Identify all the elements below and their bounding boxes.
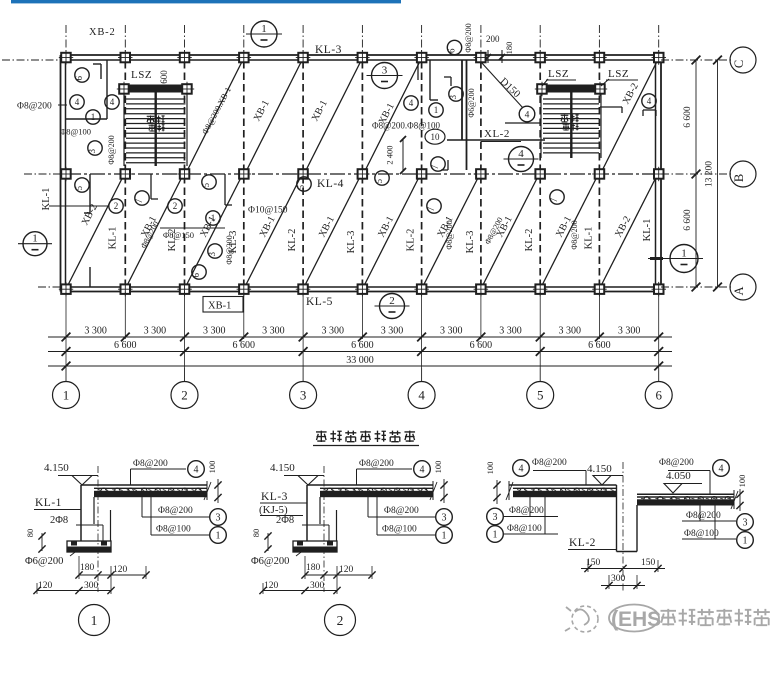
- svg-text:5: 5: [537, 388, 544, 403]
- svg-text:1: 1: [63, 388, 70, 403]
- svg-text:C: C: [732, 60, 746, 68]
- svg-text:Φ8@100: Φ8@100: [507, 524, 542, 534]
- svg-text:3 300: 3 300: [618, 326, 641, 337]
- svg-text:6 600: 6 600: [683, 209, 693, 231]
- svg-text:KL-2: KL-2: [406, 229, 417, 252]
- svg-text:Φ8@200: Φ8@200: [464, 23, 473, 52]
- svg-text:6 600: 6 600: [351, 340, 374, 351]
- svg-text:1: 1: [493, 530, 498, 541]
- svg-text:300: 300: [310, 581, 325, 591]
- svg-text:100: 100: [485, 462, 495, 475]
- svg-text:2: 2: [181, 388, 188, 403]
- svg-text:6: 6: [191, 272, 201, 277]
- svg-text:KL-1: KL-1: [583, 227, 594, 250]
- svg-text:3: 3: [743, 518, 748, 529]
- svg-text:6: 6: [74, 75, 84, 80]
- svg-text:Φ8@100: Φ8@100: [684, 529, 719, 539]
- svg-text:100: 100: [737, 475, 747, 488]
- svg-text:2Φ8: 2Φ8: [50, 515, 68, 526]
- svg-text:LSZ: LSZ: [131, 69, 152, 81]
- svg-text:6: 6: [655, 388, 662, 403]
- svg-text:6 600: 6 600: [233, 340, 256, 351]
- svg-text:4: 4: [75, 97, 80, 107]
- svg-text:Φ8@150: Φ8@150: [163, 230, 194, 240]
- svg-text:4: 4: [194, 465, 199, 476]
- svg-text:Φ8@200: Φ8@200: [158, 506, 193, 516]
- svg-text:180: 180: [504, 42, 514, 55]
- svg-text:3: 3: [493, 512, 498, 523]
- svg-text:4.150: 4.150: [587, 463, 612, 475]
- svg-text:3 300: 3 300: [203, 326, 226, 337]
- svg-text:6 600: 6 600: [114, 340, 137, 351]
- svg-text:6 600: 6 600: [683, 106, 693, 128]
- svg-text:1: 1: [32, 233, 38, 245]
- svg-text:600: 600: [159, 70, 169, 84]
- svg-text:2: 2: [173, 201, 178, 211]
- svg-text:6 600: 6 600: [588, 340, 611, 351]
- svg-text:Φ8@100: Φ8@100: [156, 525, 191, 535]
- svg-text:3 300: 3 300: [381, 326, 404, 337]
- svg-text:KL-3: KL-3: [261, 491, 288, 503]
- svg-text:KL-3: KL-3: [315, 44, 342, 56]
- svg-text:KL-3: KL-3: [346, 231, 357, 254]
- svg-text:3: 3: [382, 65, 388, 77]
- svg-text:1: 1: [211, 213, 216, 223]
- svg-text:4: 4: [525, 110, 530, 120]
- svg-text:LSZ: LSZ: [548, 68, 569, 80]
- svg-text:2: 2: [389, 295, 395, 307]
- svg-text:10: 10: [431, 132, 441, 142]
- svg-text:4: 4: [110, 97, 115, 107]
- svg-text:120: 120: [38, 581, 53, 591]
- svg-text:Φ8@200: Φ8@200: [509, 506, 544, 516]
- svg-text:6: 6: [447, 48, 457, 53]
- svg-text:KL-5: KL-5: [306, 296, 333, 308]
- svg-text:3: 3: [216, 513, 221, 524]
- svg-text:Φ8@100: Φ8@100: [60, 127, 91, 137]
- svg-text:Φ8@200: Φ8@200: [532, 458, 567, 468]
- svg-text:B: B: [732, 174, 746, 182]
- svg-text:5: 5: [296, 184, 306, 189]
- svg-text:3 300: 3 300: [499, 326, 522, 337]
- svg-text:3 300: 3 300: [321, 326, 344, 337]
- svg-text:13 200: 13 200: [705, 161, 715, 187]
- svg-text:KL-3: KL-3: [465, 231, 476, 254]
- svg-text:2Φ8: 2Φ8: [276, 515, 294, 526]
- svg-text:120: 120: [113, 565, 128, 575]
- svg-text:7: 7: [426, 206, 436, 211]
- svg-text:4: 4: [519, 464, 524, 475]
- svg-text:4: 4: [409, 98, 414, 108]
- svg-text:4: 4: [719, 464, 724, 475]
- svg-text:150: 150: [641, 558, 656, 568]
- svg-text:XB-1: XB-1: [208, 301, 231, 312]
- svg-text:7: 7: [549, 197, 559, 202]
- svg-text:Φ8@200: Φ8@200: [570, 220, 579, 249]
- svg-text:7: 7: [430, 164, 440, 169]
- svg-text:300: 300: [84, 581, 99, 591]
- svg-text:KL-2: KL-2: [524, 229, 535, 252]
- svg-text:3 300: 3 300: [559, 326, 582, 337]
- svg-text:4.150: 4.150: [44, 462, 69, 474]
- svg-text:5: 5: [374, 178, 384, 183]
- svg-text:3 300: 3 300: [440, 326, 463, 337]
- svg-text:Φ10@150: Φ10@150: [248, 206, 288, 216]
- svg-text:3 300: 3 300: [262, 326, 285, 337]
- svg-text:LSZ: LSZ: [608, 68, 629, 80]
- svg-text:Φ6@200: Φ6@200: [25, 556, 63, 567]
- svg-text:XL-2: XL-2: [484, 128, 510, 140]
- svg-text:Φ8@200: Φ8@200: [384, 506, 419, 516]
- svg-text:2: 2: [114, 201, 119, 211]
- svg-text:XB-2: XB-2: [89, 27, 116, 38]
- svg-text:3: 3: [442, 513, 447, 524]
- svg-text:4: 4: [420, 465, 425, 476]
- svg-text:6 600: 6 600: [470, 340, 493, 351]
- svg-text:80: 80: [25, 529, 35, 538]
- svg-text:80: 80: [251, 529, 261, 538]
- svg-text:Φ6@200: Φ6@200: [251, 556, 289, 567]
- svg-text:Φ6@200: Φ6@200: [467, 88, 476, 117]
- svg-text:Φ8@200: Φ8@200: [659, 458, 694, 468]
- svg-text:Φ8@200: Φ8@200: [107, 135, 116, 164]
- svg-text:120: 120: [339, 565, 354, 575]
- svg-text:KL-2: KL-2: [569, 537, 596, 549]
- svg-text:KL-1: KL-1: [108, 227, 119, 250]
- svg-text:3: 3: [448, 94, 458, 99]
- svg-text:3: 3: [300, 388, 307, 403]
- svg-text:200: 200: [486, 34, 500, 44]
- svg-text:Φ8@200: Φ8@200: [445, 220, 454, 249]
- svg-text:7: 7: [134, 198, 144, 203]
- svg-text:EHS: EHS: [618, 608, 661, 631]
- svg-text:4.050: 4.050: [666, 470, 691, 482]
- svg-text:3 300: 3 300: [84, 326, 107, 337]
- svg-text:KL-2: KL-2: [287, 229, 298, 252]
- svg-text:Φ8@200: Φ8@200: [686, 511, 721, 521]
- svg-text:1: 1: [743, 536, 748, 547]
- svg-text:Φ8@200: Φ8@200: [133, 459, 168, 469]
- svg-text:33 000: 33 000: [346, 355, 374, 366]
- svg-text:1: 1: [442, 531, 447, 542]
- svg-text:5: 5: [74, 185, 84, 190]
- svg-text:2 400: 2 400: [385, 145, 395, 164]
- svg-text:4: 4: [647, 96, 652, 106]
- svg-text:Φ8@100: Φ8@100: [382, 525, 417, 535]
- svg-text:1: 1: [681, 248, 687, 260]
- svg-text:3 300: 3 300: [144, 326, 167, 337]
- svg-text:1: 1: [261, 23, 267, 35]
- svg-text:100: 100: [433, 461, 443, 474]
- svg-text:1: 1: [91, 613, 98, 628]
- svg-text:4: 4: [518, 148, 524, 160]
- svg-text:Φ8@200: Φ8@200: [225, 235, 234, 264]
- svg-text:KL-1: KL-1: [35, 497, 62, 509]
- svg-text:1: 1: [434, 105, 439, 115]
- svg-text:Φ8@200: Φ8@200: [17, 102, 52, 112]
- svg-text:3: 3: [207, 251, 217, 256]
- svg-text:1: 1: [91, 112, 96, 122]
- svg-text:120: 120: [264, 581, 279, 591]
- svg-text:1: 1: [216, 531, 221, 542]
- svg-text:100: 100: [207, 461, 217, 474]
- svg-text:KL-1: KL-1: [41, 188, 52, 211]
- svg-text:4: 4: [418, 388, 425, 403]
- svg-text:5: 5: [201, 182, 211, 187]
- svg-text:Φ8@200: Φ8@200: [359, 459, 394, 469]
- svg-text:KL-4: KL-4: [317, 178, 344, 190]
- svg-text:KL-1: KL-1: [642, 219, 653, 242]
- svg-text:Φ8@200.Φ8@100: Φ8@200.Φ8@100: [372, 121, 440, 131]
- svg-text:A: A: [732, 286, 746, 295]
- svg-text:300: 300: [611, 574, 626, 584]
- svg-text:4.150: 4.150: [270, 462, 295, 474]
- svg-text:3: 3: [87, 148, 97, 153]
- svg-text:2: 2: [337, 613, 344, 628]
